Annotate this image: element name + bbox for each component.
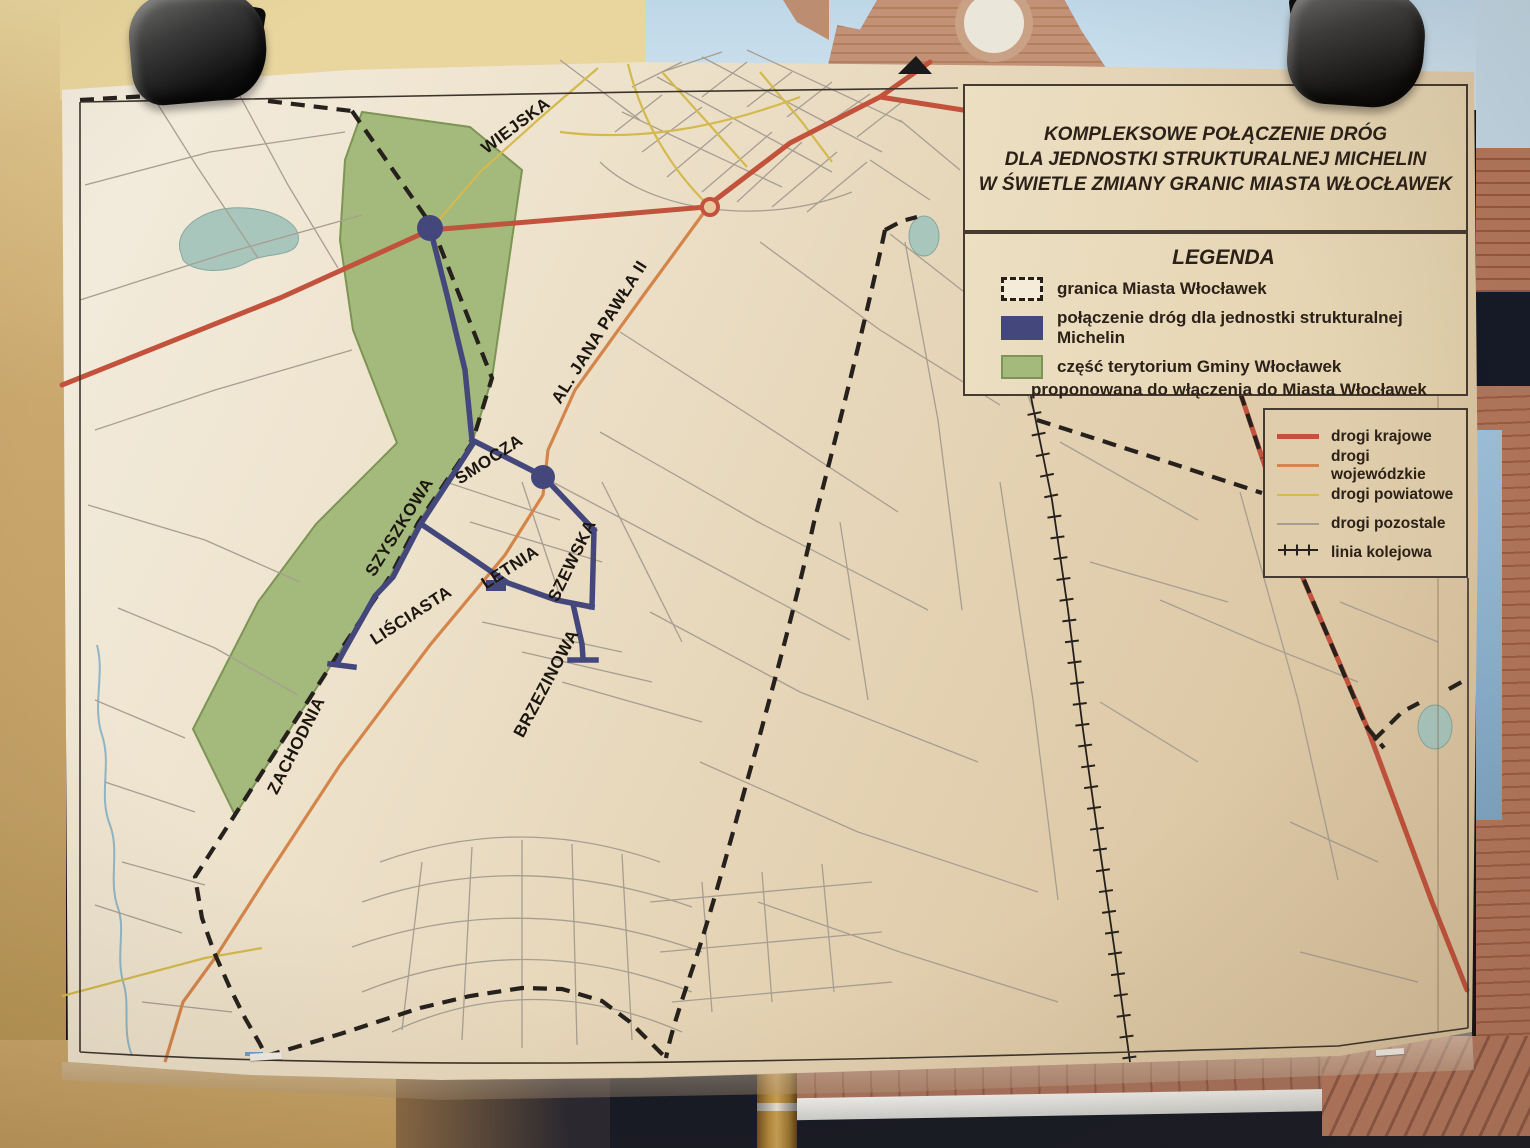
legend-item-territory-label-line2: proponowana do włączenia do Miasta Włocł… <box>1031 380 1466 400</box>
lake-large <box>180 208 299 271</box>
legend-item-territory: część terytorium Gminy Włocławek <box>1001 355 1466 379</box>
route-node-smocza <box>531 465 555 489</box>
map-title-line-2: DLA JEDNOSTKI STRUKTURALNEJ MICHELIN <box>965 147 1466 172</box>
road-legend-railway-label: linia kolejowa <box>1331 544 1432 562</box>
legend-item-boundary-label: granica Miasta Włocławek <box>1057 279 1267 299</box>
road-legend-county-label: drogi powiatowe <box>1331 486 1453 504</box>
street-label-brzezinowa: BRZEZINOWA <box>510 626 583 740</box>
territory-swatch-icon <box>1001 355 1043 379</box>
legend-item-connection: połączenie dróg dla jednostki struktural… <box>1001 308 1466 348</box>
road-legend-county: drogi powiatowe <box>1277 480 1466 509</box>
lake-small-right <box>1418 705 1452 749</box>
street-label-wiejska: WIEJSKA <box>478 94 554 158</box>
railway-line <box>1030 392 1130 1062</box>
legend-box: LEGENDA granica Miasta Włocławek połącze… <box>963 232 1468 396</box>
road-legend-national-label: drogi krajowe <box>1331 428 1432 446</box>
map-title-line-3: W ŚWIETLE ZMIANY GRANIC MIASTA WŁOCŁAWEK <box>965 172 1466 197</box>
road-legend-regional: drogi wojewódzkie <box>1277 451 1466 480</box>
route-node-north <box>417 215 443 241</box>
easel-clip-left <box>122 0 274 110</box>
easel-clip-right <box>1282 0 1432 114</box>
junction-roundabout <box>702 199 718 215</box>
road-legend-regional-label: drogi wojewódzkie <box>1331 448 1466 484</box>
regional-road-sample-icon <box>1277 464 1319 467</box>
road-legend-other-label: drogi pozostale <box>1331 515 1446 533</box>
railway-sample-icon <box>1277 543 1319 562</box>
stream <box>97 645 132 1056</box>
road-legend-railway: linia kolejowa <box>1277 538 1466 567</box>
national-road-north <box>706 62 963 207</box>
residential-streets <box>352 480 892 1048</box>
legend-item-connection-label: połączenie dróg dla jednostki struktural… <box>1057 308 1466 348</box>
national-road-sample-icon <box>1277 434 1319 439</box>
legend-heading: LEGENDA <box>981 246 1466 270</box>
road-legend-box: drogi krajowe drogi wojewódzkie drogi po… <box>1263 408 1468 578</box>
railway-ticks <box>1030 392 1130 1062</box>
legend-item-territory-label: część terytorium Gminy Włocławek <box>1057 357 1341 377</box>
photo-of-map-on-easel: WIEJSKA AL. JANA PAWŁA II SMOCZA SZYSZKO… <box>0 0 1530 1148</box>
other-road-sample-icon <box>1277 523 1319 525</box>
lake-small-top <box>909 216 939 256</box>
street-label-jana-pawla: AL. JANA PAWŁA II <box>548 257 651 407</box>
clip-body <box>1284 0 1428 111</box>
map-title-line-1: KOMPLEKSOWE POŁĄCZENIE DRÓG <box>965 122 1466 147</box>
clip-body <box>125 0 270 108</box>
legend-item-boundary: granica Miasta Włocławek <box>1001 277 1466 301</box>
county-road-sample-icon <box>1277 494 1319 496</box>
connection-swatch-icon <box>1001 316 1043 340</box>
road-legend-other: drogi pozostale <box>1277 509 1466 538</box>
boundary-swatch-icon <box>1001 277 1043 301</box>
